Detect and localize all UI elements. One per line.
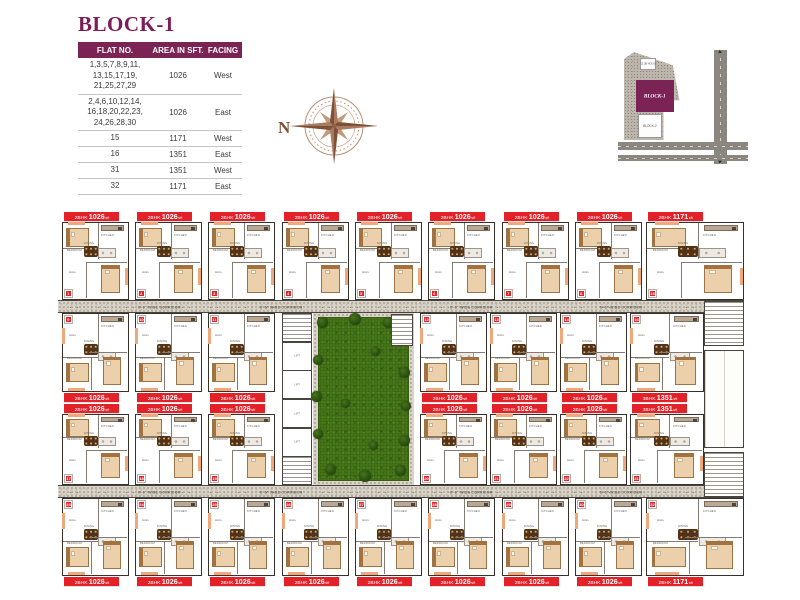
room-label: HALL — [657, 519, 664, 522]
door-opening — [687, 296, 701, 298]
bed-pillow — [472, 546, 477, 551]
inner-wall — [171, 499, 172, 537]
bed-pillow — [144, 423, 149, 427]
bed-icon — [321, 265, 340, 293]
unit-area-unit: sft — [533, 397, 537, 401]
stove-icon — [338, 503, 342, 506]
apartment-unit: KITCHENBEDROOMDININGHALL15 — [646, 222, 744, 300]
bed-pillow — [584, 551, 589, 556]
bed-icon — [247, 265, 266, 293]
flat-number: 30 — [579, 502, 583, 507]
kitchen-counter — [674, 417, 700, 422]
unit-area-unit: sft — [325, 581, 329, 585]
inner-wall — [584, 450, 625, 451]
room-label: DINING — [230, 432, 240, 435]
inner-wall — [159, 450, 160, 483]
apartment-unit: HALLKITCHENDININGBEDROOM12 — [420, 313, 487, 392]
door-opening — [580, 314, 590, 316]
flat-number-badge: 19 — [211, 475, 218, 482]
door-opening — [530, 296, 540, 298]
balcony — [426, 414, 443, 417]
room-label: HALL — [289, 271, 296, 274]
unit-area-label: 2BHK1026sft — [64, 393, 119, 402]
unit-bhk: 2BHK — [220, 395, 233, 401]
bed-headboard — [248, 266, 265, 269]
bed-icon — [652, 547, 686, 567]
door-opening — [236, 481, 246, 483]
stove-icon — [264, 227, 268, 230]
apartment-unit: HALLKITCHENDININGBEDROOM24 — [135, 498, 202, 576]
unit-area-text: 2BHK1171sft — [658, 213, 692, 220]
unit-area-value: 1026 — [601, 213, 617, 220]
stove-icon — [118, 503, 122, 506]
inner-wall — [235, 352, 273, 353]
bed-pillow — [178, 270, 183, 275]
unit-area-label: 2BHK1026sft — [577, 577, 632, 586]
kitchen-counter — [467, 501, 490, 507]
unit-area-text: 2BHK1026sft — [147, 405, 182, 412]
bed-icon — [469, 541, 488, 569]
inner-wall — [602, 537, 640, 538]
unit-area-text: 2BHK1026sft — [587, 578, 622, 585]
bed-icon — [174, 453, 193, 478]
unit-area-unit: sft — [105, 397, 109, 401]
bed-pillow — [399, 546, 404, 551]
flat-number-badge: 22 — [563, 475, 570, 482]
unit-area-unit: sft — [673, 408, 677, 412]
bush-icon — [369, 441, 378, 450]
balcony — [68, 222, 85, 225]
bed-pillow — [619, 546, 624, 551]
unit-bhk: 2BHK — [74, 214, 87, 220]
room-label: KITCHEN — [599, 425, 612, 428]
balcony — [125, 456, 128, 471]
room-label: KITCHEN — [247, 425, 260, 428]
room-label: DINING — [377, 525, 387, 528]
unit-area-value: 1026 — [308, 578, 324, 585]
inner-wall — [685, 537, 742, 538]
bed-icon — [601, 357, 620, 385]
bathroom — [98, 248, 116, 258]
bed-headboard — [653, 548, 656, 566]
kitchen-counter — [394, 225, 417, 231]
dining-table-icon — [524, 246, 537, 257]
unit-area-unit: sft — [471, 216, 475, 220]
lift-label: LIFT — [294, 384, 300, 387]
bathroom — [171, 437, 189, 446]
bush-icon — [359, 470, 371, 482]
unit-area-value: 1026 — [516, 405, 532, 412]
unit-bhk: 2BHK — [658, 579, 671, 585]
bed-pillow — [569, 367, 574, 372]
bed-pillow — [534, 361, 539, 366]
unit-area-value: 1026 — [88, 578, 104, 585]
bush-icon — [401, 401, 411, 411]
flat-number-badge: 13 — [493, 316, 500, 323]
unit-area-label: 2BHK1026sft — [210, 212, 265, 221]
dining-table-icon — [442, 344, 455, 355]
inner-wall — [237, 357, 238, 390]
dining-table-icon — [304, 529, 317, 540]
bed-pillow — [639, 367, 644, 372]
corridor: 6'-6" WIDE CORRIDOR6'-6" WIDE CORRIDOR6'… — [58, 485, 744, 498]
unit-area-label: 2BHK1026sft — [137, 577, 192, 586]
room-label: KITCHEN — [247, 325, 260, 328]
unit-area-value: 1026 — [88, 394, 104, 401]
room-label: BEDROOM — [213, 438, 228, 441]
balcony — [288, 222, 305, 225]
unit-area-text: 2BHK1026sft — [587, 213, 622, 220]
apartment-unit: KITCHENBEDROOMDININGHALL7 — [502, 222, 569, 300]
bed-icon — [249, 541, 268, 569]
room-label: KITCHEN — [101, 325, 114, 328]
balcony — [141, 388, 158, 391]
room-label: DINING — [597, 525, 607, 528]
kitchen-counter — [321, 501, 344, 507]
room-label: BEDROOM — [580, 249, 595, 252]
room-label: HALL — [69, 271, 76, 274]
room-label: BEDROOM — [653, 542, 668, 545]
room-label: DINING — [230, 242, 240, 245]
bed-headboard — [360, 229, 363, 247]
bed-icon — [101, 453, 120, 478]
bed-pillow — [463, 458, 468, 463]
room-label: BEDROOM — [565, 357, 580, 360]
door-opening — [383, 296, 393, 298]
bed-headboard — [425, 364, 428, 382]
stove-icon — [264, 318, 268, 321]
unit-area-unit: sft — [251, 408, 255, 412]
inner-wall — [89, 537, 127, 538]
apartment-unit: HALLKITCHENDININGBEDROOM14 — [560, 313, 627, 392]
unit-area-unit: sft — [471, 581, 475, 585]
unit-area-label: 2BHK1026sft — [64, 404, 119, 413]
bed-headboard — [104, 358, 121, 361]
bed-icon — [247, 453, 266, 478]
room-label: HALL — [435, 271, 442, 274]
inner-wall — [526, 262, 527, 298]
bed-pillow — [252, 546, 257, 551]
bed-pillow — [179, 361, 184, 366]
inner-wall — [681, 262, 682, 298]
room-label: DINING — [442, 432, 452, 435]
unit-area-unit: sft — [398, 216, 402, 220]
apartment-unit: HALLKITCHENDININGBEDROOM30 — [575, 498, 642, 576]
room-label: DINING — [304, 525, 314, 528]
apartment-unit: KITCHENBEDROOMDININGHALL21 — [490, 414, 557, 485]
inner-wall — [98, 314, 99, 352]
door-opening — [588, 481, 598, 483]
flat-number-badge: 24 — [138, 501, 145, 508]
flat-number-badge: 1 — [65, 290, 72, 297]
bed-icon — [459, 453, 478, 478]
inner-wall — [159, 450, 200, 451]
balcony — [68, 388, 85, 391]
inner-wall — [379, 262, 420, 263]
inner-wall — [456, 314, 457, 352]
flat-number: 15 — [650, 291, 654, 296]
inner-wall — [244, 499, 245, 537]
dining-table-icon — [582, 436, 595, 446]
bed-headboard — [102, 454, 119, 457]
flat-number: 19 — [212, 476, 216, 481]
bed-pillow — [603, 458, 608, 463]
unit-bhk: 2BHK — [572, 395, 585, 401]
bed-icon — [674, 453, 695, 478]
unit-area-text: 2BHK1171sft — [658, 578, 692, 585]
room-label: KITCHEN — [394, 234, 407, 237]
unit-area-value: 1026 — [308, 213, 324, 220]
unit-bhk: 2BHK — [432, 406, 445, 412]
flat-number-badge: 20 — [423, 475, 430, 482]
unit-area-value: 1026 — [161, 213, 177, 220]
door-opening — [82, 499, 92, 501]
bed-icon — [599, 453, 618, 478]
flat-number-badge: 6 — [431, 290, 438, 297]
room-label: HALL — [69, 334, 76, 337]
room-label: BEDROOM — [433, 542, 448, 545]
bed-headboard — [705, 266, 731, 269]
bed-icon — [323, 541, 342, 569]
brochure-page: BLOCK-1 FLAT NO. AREA IN SFT. FACING 1,3… — [0, 0, 800, 600]
room-label: KITCHEN — [529, 425, 542, 428]
flat-number-badge: 3 — [211, 290, 218, 297]
bed-pillow — [71, 551, 76, 556]
room-label: BEDROOM — [67, 542, 82, 545]
dining-table-icon — [524, 529, 537, 540]
room-label: HALL — [427, 459, 434, 462]
door-opening — [82, 314, 92, 316]
room-label: KITCHEN — [614, 234, 627, 237]
inner-wall — [611, 499, 612, 537]
inner-wall — [517, 352, 555, 353]
inner-wall — [452, 262, 493, 263]
room-label: DINING — [654, 432, 664, 435]
unit-area-value: 1026 — [88, 405, 104, 412]
apartment-unit: HALLKITCHENDININGBEDROOM10 — [135, 313, 202, 392]
room-label: DINING — [84, 340, 94, 343]
room-label: BEDROOM — [360, 249, 375, 252]
bed-headboard — [462, 358, 479, 361]
bed-headboard — [460, 454, 477, 457]
room-label: HALL — [215, 459, 222, 462]
bed-headboard — [580, 229, 583, 247]
balcony — [208, 513, 211, 530]
unit-area-unit: sft — [533, 408, 537, 412]
inner-wall — [698, 499, 699, 537]
kitchen-counter — [101, 225, 124, 231]
unit-bhk: 2BHK — [514, 214, 527, 220]
balcony — [198, 268, 201, 285]
inner-wall — [162, 352, 200, 353]
door-opening — [236, 296, 246, 298]
bed-pillow — [217, 232, 222, 237]
unit-bhk: 3BHK — [642, 395, 655, 401]
corridor-label: 6'-6" WIDE CORRIDOR — [138, 305, 180, 309]
inner-wall — [689, 541, 690, 574]
unit-area-text: 2BHK1026sft — [367, 213, 402, 220]
unit-area-unit: sft — [673, 397, 677, 401]
flat-number-badge: 10 — [138, 316, 145, 323]
door-opening — [676, 499, 690, 501]
bed-headboard — [507, 548, 510, 566]
balcony — [418, 268, 421, 285]
stove-icon — [558, 503, 562, 506]
unit-bhk: 2BHK — [147, 214, 160, 220]
bed-pillow — [105, 458, 110, 463]
bed-pillow — [291, 232, 296, 237]
bed-pillow — [106, 361, 111, 366]
unit-area-value: 1026 — [528, 213, 544, 220]
unit-bhk: 3BHK — [642, 406, 655, 412]
inner-wall — [589, 357, 590, 390]
bed-headboard — [565, 420, 568, 436]
door-opening — [90, 296, 100, 298]
kitchen-counter — [101, 501, 124, 507]
balcony — [560, 328, 563, 345]
room-label: BEDROOM — [67, 249, 82, 252]
room-label: BEDROOM — [495, 438, 510, 441]
stove-icon — [631, 503, 635, 506]
unit-area-value: 1026 — [454, 578, 470, 585]
room-label: BEDROOM — [635, 438, 650, 441]
inner-wall — [164, 357, 165, 390]
room-label: BEDROOM — [140, 438, 155, 441]
flat-number: 32 — [650, 502, 654, 507]
stove-icon — [484, 503, 488, 506]
balcony — [483, 456, 486, 471]
unit-area-value: 1351 — [656, 405, 672, 412]
unit-area-label: 2BHK1026sft — [64, 212, 119, 221]
balcony — [508, 222, 525, 225]
inner-wall — [447, 352, 485, 353]
door-opening — [310, 296, 320, 298]
bed-headboard — [250, 358, 267, 361]
flat-number-badge: 8 — [578, 290, 585, 297]
staircase — [704, 452, 744, 497]
apartment-unit: KITCHENBEDROOMDININGHALL5 — [355, 222, 422, 300]
door-opening — [228, 499, 238, 501]
bed-pillow — [364, 232, 369, 237]
stove-icon — [476, 419, 480, 422]
room-label: HALL — [142, 459, 149, 462]
unit-area-text: 2BHK1026sft — [514, 213, 549, 220]
balcony — [434, 572, 451, 575]
bed-icon — [249, 357, 268, 385]
stove-icon — [616, 419, 620, 422]
unit-area-text: 2BHK1026sft — [432, 394, 467, 401]
inner-wall — [89, 352, 127, 353]
apartment-unit: KITCHENBEDROOMDININGHALL6 — [428, 222, 495, 300]
unit-area-label: 2BHK1026sft — [210, 393, 265, 402]
bed-headboard — [397, 542, 414, 545]
inner-wall — [232, 262, 273, 263]
bed-headboard — [433, 548, 436, 566]
flat-number: 10 — [139, 317, 143, 322]
unit-area-value: 1026 — [161, 394, 177, 401]
apartment-unit: HALLKITCHENDININGBEDROOM11 — [208, 313, 275, 392]
unit-area-label: 2BHK1026sft — [284, 212, 339, 221]
bathroom — [391, 248, 409, 258]
unit-area-unit: sft — [618, 581, 622, 585]
bed-headboard — [67, 364, 70, 382]
flat-number-badge: 4 — [285, 290, 292, 297]
room-label: KITCHEN — [541, 234, 554, 237]
bush-icon — [313, 355, 323, 365]
room-label: BEDROOM — [433, 249, 448, 252]
balcony — [581, 572, 598, 575]
unit-area-label: 2BHK1171sft — [648, 577, 703, 586]
stove-icon — [118, 419, 122, 422]
inner-wall — [391, 499, 392, 537]
unit-area-label: 2BHK1026sft — [284, 577, 339, 586]
room-label: HALL — [362, 519, 369, 522]
unit-area-label: 2BHK1026sft — [504, 212, 559, 221]
lift: LIFT — [282, 428, 312, 457]
stove-icon — [191, 318, 195, 321]
unit-area-label: 3BHK1351sft — [632, 404, 687, 413]
unit-bhk: 2BHK — [220, 579, 233, 585]
door-opening — [228, 314, 238, 316]
flat-number: 11 — [212, 317, 216, 322]
bed-icon — [704, 265, 732, 293]
bed-headboard — [530, 454, 547, 457]
unit-bhk: 2BHK — [587, 579, 600, 585]
apartment-unit: HALLKITCHENDININGBEDROOM28 — [428, 498, 495, 576]
room-label: HALL — [362, 271, 369, 274]
unit-area-unit: sft — [105, 216, 109, 220]
balcony — [700, 456, 703, 471]
balcony — [62, 328, 65, 345]
balcony — [141, 572, 158, 575]
balcony — [655, 572, 680, 575]
staircase — [282, 313, 312, 342]
room-label: BEDROOM — [507, 249, 522, 252]
dining-table-icon — [450, 246, 463, 257]
bed-headboard — [175, 266, 192, 269]
stove-icon — [546, 419, 550, 422]
lift-label: LIFT — [294, 355, 300, 358]
balcony — [637, 414, 655, 417]
apartment-unit: KITCHENBEDROOMDININGHALL8 — [575, 222, 642, 300]
inner-wall — [171, 314, 172, 352]
balcony — [355, 513, 358, 530]
unit-bhk: 2BHK — [587, 214, 600, 220]
apartment-unit: HALLKITCHENDININGBEDROOM13 — [490, 313, 557, 392]
room-label: HALL — [427, 334, 434, 337]
unit-area-value: 1171 — [673, 578, 688, 585]
bush-icon — [341, 399, 350, 408]
apartment-unit: HALLKITCHENDININGBEDROOM25 — [208, 498, 275, 576]
inner-wall — [519, 357, 520, 390]
flat-number: 27 — [359, 502, 363, 507]
bed-icon — [706, 541, 734, 569]
door-opening — [155, 314, 165, 316]
bush-icon — [313, 429, 323, 439]
flat-number: 12 — [424, 317, 428, 322]
balcony — [214, 388, 231, 391]
flat-number-badge: 17 — [65, 475, 72, 482]
bed-headboard — [102, 266, 119, 269]
inner-wall — [86, 450, 87, 483]
unit-area-text: 2BHK1026sft — [74, 578, 109, 585]
unit-area-unit: sft — [545, 581, 549, 585]
flat-number-badge: 31 — [633, 475, 640, 482]
bed-icon — [396, 541, 415, 569]
bed-pillow — [437, 232, 442, 237]
unit-bhk: 2BHK — [367, 214, 380, 220]
dining-table-icon — [230, 436, 243, 446]
